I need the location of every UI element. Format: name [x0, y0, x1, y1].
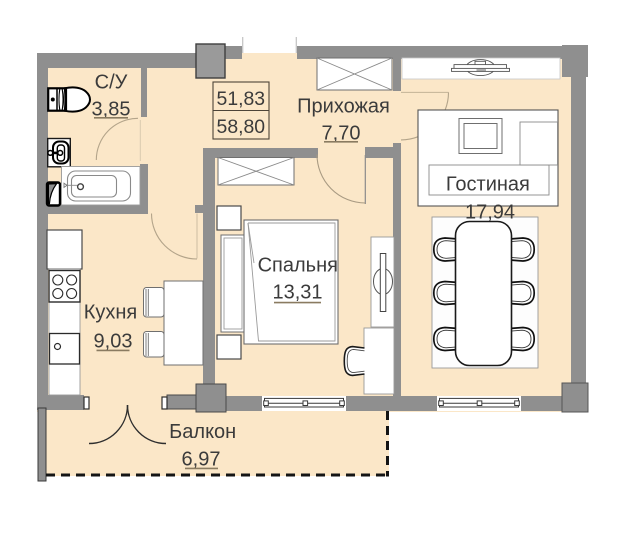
svg-text:6,97: 6,97: [182, 449, 221, 471]
svg-text:Балкон: Балкон: [169, 421, 236, 443]
svg-text:9,03: 9,03: [94, 331, 133, 353]
svg-text:13,31: 13,31: [272, 281, 322, 303]
svg-text:Кухня: Кухня: [84, 302, 138, 324]
svg-text:17,94: 17,94: [465, 201, 515, 223]
svg-text:51,83: 51,83: [217, 88, 266, 110]
svg-text:Спальня: Спальня: [258, 254, 338, 276]
svg-text:Гостиная: Гостиная: [446, 173, 530, 195]
svg-text:58,80: 58,80: [217, 116, 266, 138]
svg-text:С/У: С/У: [95, 72, 128, 94]
svg-text:Прихожая: Прихожая: [297, 96, 390, 118]
